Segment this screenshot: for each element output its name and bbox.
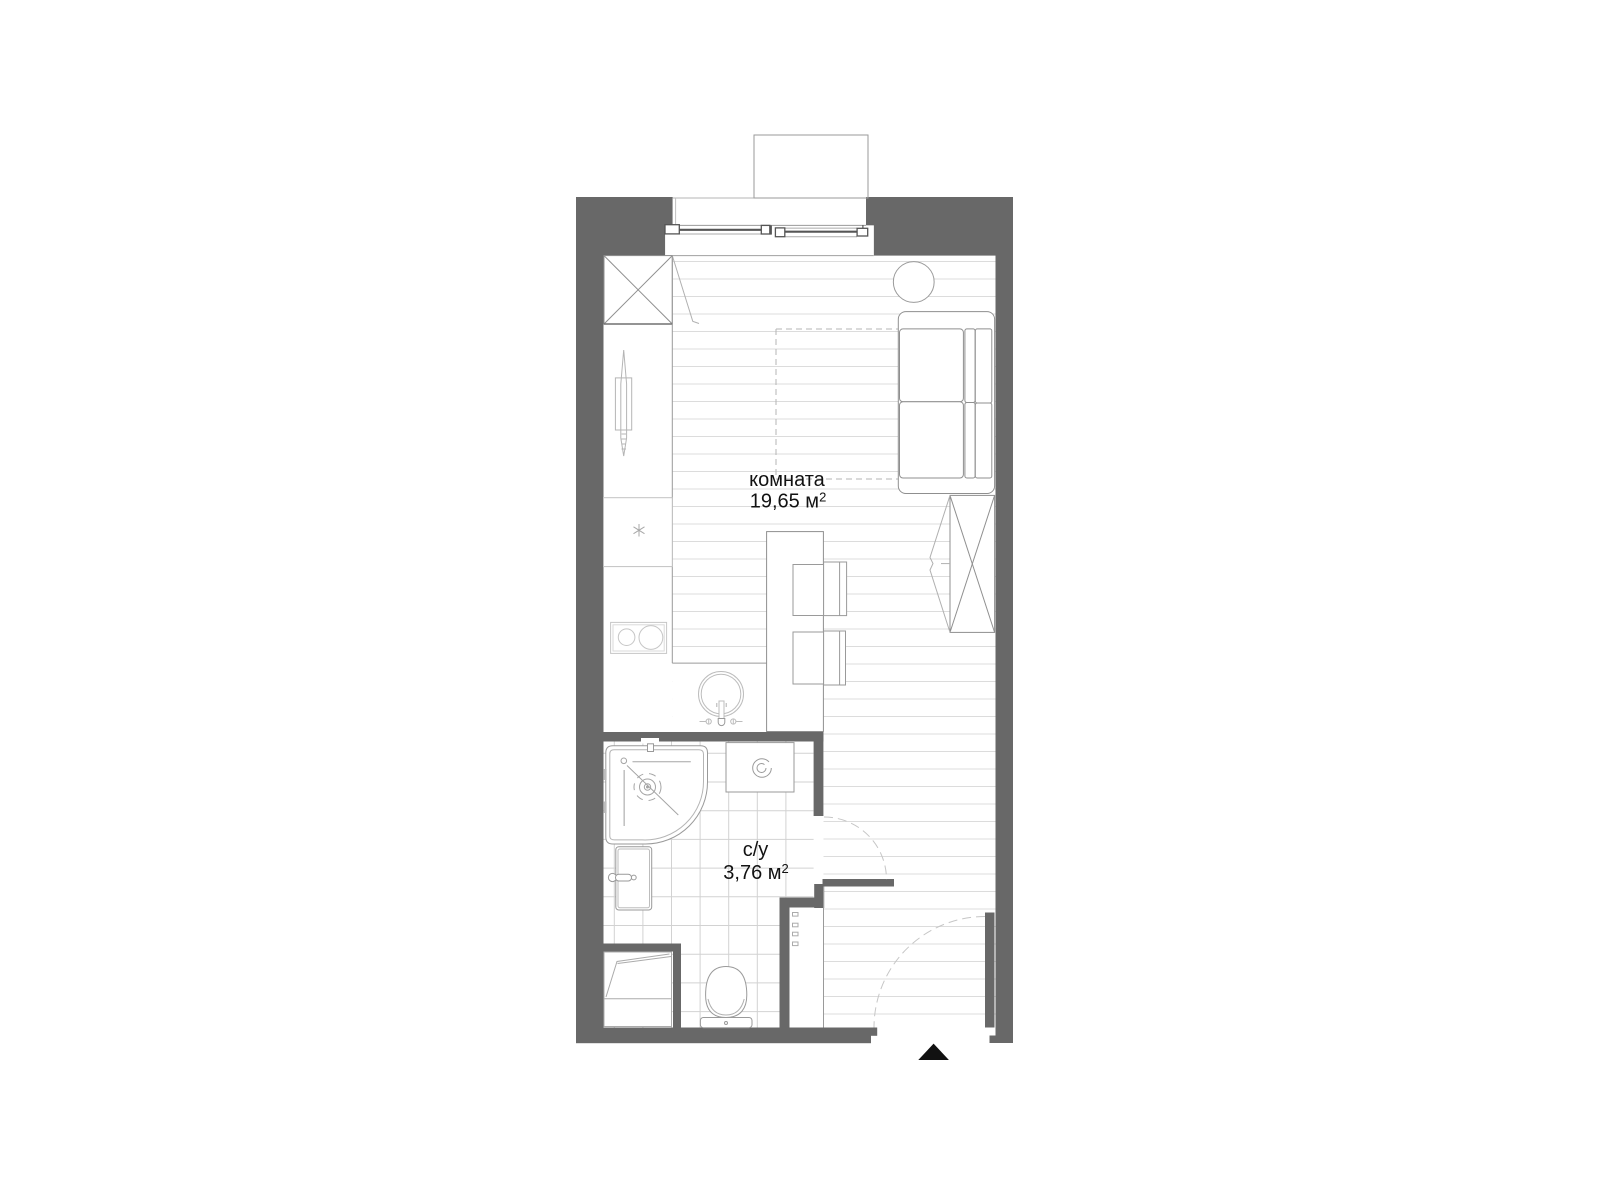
svg-text:3,76 м2: 3,76 м2 xyxy=(723,861,788,884)
svg-text:с/у: с/у xyxy=(743,839,769,861)
svg-text:19,65 м2: 19,65 м2 xyxy=(750,490,827,513)
svg-text:комната: комната xyxy=(749,469,826,491)
